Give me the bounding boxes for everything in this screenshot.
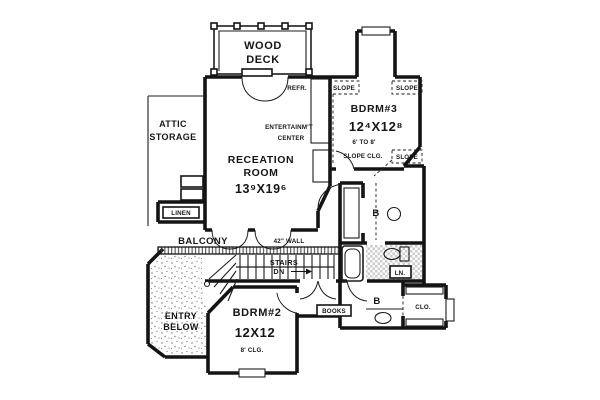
bdrm3-note-2: SLOPE CLG. [343, 153, 383, 160]
entertainment-cabinet [313, 150, 329, 182]
hall-closet-rod [344, 188, 359, 238]
clo-rod-top [406, 287, 443, 294]
bdrm3-note-1: 6' TO 8' [352, 139, 376, 146]
recreation-label-2: ROOM [243, 167, 278, 179]
refr-chase [311, 79, 330, 143]
wood-deck-label-2: DECK [246, 54, 280, 66]
refr-label: REFR. [287, 85, 307, 92]
clo-label: CLO. [415, 304, 431, 311]
wood-deck-label-1: WOOD [244, 40, 282, 52]
clo-rod-bottom [406, 319, 443, 326]
slope-label-bottom-right: SLOPE [396, 154, 418, 161]
bath-upper-label: B [372, 208, 379, 219]
deck-door-arc [242, 77, 288, 101]
recreation-dims: 13⁹X19⁶ [235, 182, 287, 196]
dn-arrow [291, 269, 312, 275]
stairs-label-1: STAIRS [270, 258, 298, 267]
bdrm2-dims: 12X12 [235, 325, 276, 340]
deck-door-leaf [242, 69, 272, 76]
slope-label-top-left: SLOPE [333, 85, 355, 92]
entertainment-label-1: ENTERTAINM'T [265, 124, 313, 131]
stairs-label-2: DN [273, 267, 284, 276]
bdrm2-note: 8' CLG. [241, 347, 264, 354]
ln-label: LN. [395, 270, 406, 277]
recreation-label-1: RECEATION [228, 154, 294, 166]
floor-plan-svg: WOOD DECK ATTIC STORAGE REFR. SLOPE SLOP… [0, 0, 600, 400]
bdrm3-dims: 12⁴X12⁸ [349, 119, 403, 134]
linen-label: LINEN [171, 210, 191, 217]
attic-label-2: STORAGE [149, 132, 196, 142]
window-closet [446, 299, 454, 321]
books-label: BOOKS [322, 308, 346, 315]
entry-label-2: BELOW [163, 322, 199, 332]
entry-label-1: ENTRY [165, 311, 197, 321]
bath-lower-door-arc [347, 281, 367, 301]
newel-post [205, 282, 210, 287]
bdrm2-name: BDRM#2 [233, 307, 282, 319]
balcony-label: BALCONY [178, 236, 228, 247]
stair-winders [209, 255, 237, 301]
bdrm3-name: BDRM#3 [351, 103, 398, 115]
window-bdrm3-bumpout [362, 27, 390, 35]
slope-label-top-right: SLOPE [396, 85, 418, 92]
balcony-rail [158, 247, 340, 254]
window-bdrm2 [239, 369, 265, 377]
entertainment-label-2: CENTER [278, 135, 305, 142]
floor-plan: WOOD DECK ATTIC STORAGE REFR. SLOPE SLOP… [0, 0, 600, 400]
sink-lower [375, 313, 391, 324]
attic-label-1: ATTIC [159, 119, 187, 129]
chimney-box-lower [181, 189, 203, 200]
hall-double-door-left [300, 281, 318, 299]
chimney-box-upper [181, 176, 203, 187]
bath-lower-label: B [373, 296, 380, 307]
wall-42-label: 42" WALL [274, 238, 305, 245]
sink-upper [388, 208, 401, 221]
hall-double-door-right [318, 281, 336, 299]
entry-below-floor [151, 254, 206, 355]
